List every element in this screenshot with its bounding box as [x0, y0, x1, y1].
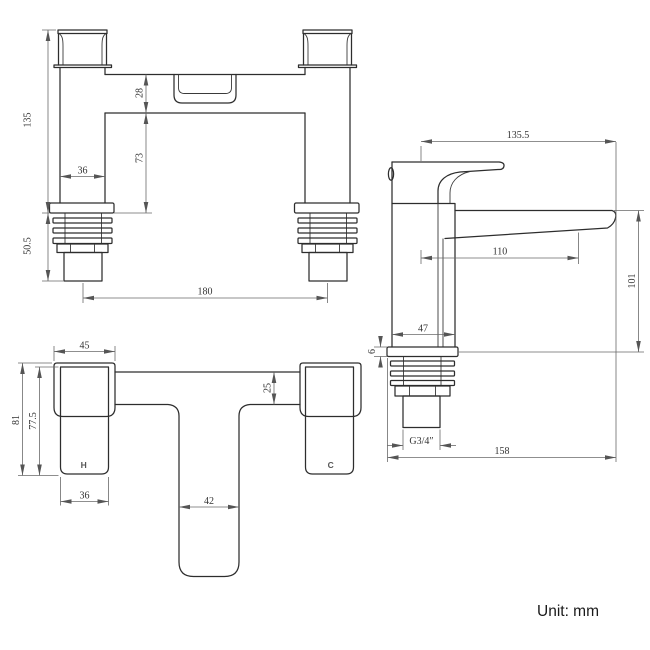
plan-left-handle: H — [54, 363, 115, 474]
dim-flange-thickness: 6 — [367, 349, 378, 354]
unit-note: Unit: mm — [537, 603, 599, 620]
dim-bar-to-base: 73 — [135, 153, 146, 163]
dim-tail-height: 50.5 — [23, 237, 34, 255]
dim-overall-depth-plan: 81 — [11, 415, 22, 425]
plan-right-handle: C — [300, 363, 361, 474]
dim-total-height: 135 — [23, 113, 34, 128]
front-spout-housing — [174, 75, 236, 104]
hot-port-label: H — [81, 460, 88, 470]
dim-body-depth: 47 — [418, 324, 428, 335]
side-dimensions: 135.5 110 101 47 6 G3/4″ 158 — [367, 130, 644, 462]
front-right-base-stack — [295, 203, 360, 281]
front-view: 135 50.5 28 73 36 180 — [23, 30, 360, 303]
front-right-handle — [299, 30, 357, 68]
cold-port-label: C — [328, 460, 335, 470]
dim-spout-height: 101 — [627, 274, 638, 289]
dim-spout-projection: 110 — [493, 247, 508, 258]
front-left-handle — [54, 30, 112, 68]
dim-inlet-thread: G3/4″ — [409, 436, 433, 447]
front-left-base-stack — [50, 203, 115, 281]
dim-overall-projection: 135.5 — [507, 130, 530, 141]
side-view: 135.5 110 101 47 6 G3/4″ 158 — [367, 130, 644, 462]
dim-body-depth-plan: 77.5 — [28, 412, 39, 430]
plan-crossbar-and-spout — [115, 372, 300, 577]
technical-drawing-sheet: 135 50.5 28 73 36 180 — [0, 0, 650, 650]
side-base-stack — [387, 347, 458, 428]
dim-bar-height: 28 — [135, 88, 146, 98]
dim-inlet-centres: 180 — [198, 287, 213, 298]
front-right-pillar — [305, 68, 350, 204]
plan-dimensions: 45 25 81 77.5 36 42 — [11, 341, 274, 508]
bath-filler-tap-drawing: 135 50.5 28 73 36 180 — [0, 0, 650, 650]
dim-pillar-width: 36 — [78, 166, 88, 177]
front-dimensions: 135 50.5 28 73 36 180 — [23, 30, 328, 303]
front-left-pillar — [60, 68, 105, 204]
plan-view: H C 45 25 81 77.5 36 42 — [11, 341, 361, 577]
dim-body-width-plan: 36 — [80, 491, 90, 502]
dim-overall-depth: 158 — [495, 446, 510, 457]
side-body-and-handle — [388, 162, 504, 347]
dim-bar-depth: 25 — [263, 383, 274, 393]
dim-handle-depth: 45 — [80, 341, 90, 352]
side-spout — [445, 211, 616, 239]
dim-spout-width: 42 — [204, 496, 214, 507]
